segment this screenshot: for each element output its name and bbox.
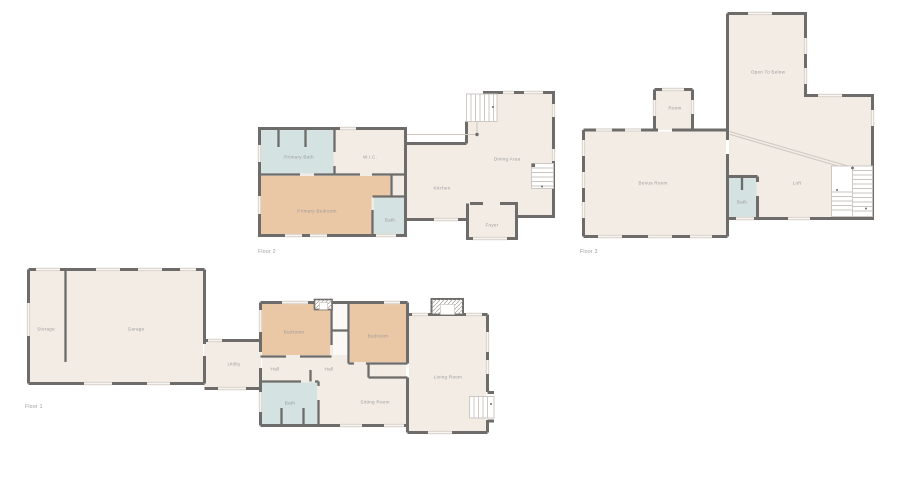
room-label-dining-area: Dining Area	[494, 157, 521, 162]
room-label-storage: Storage	[37, 327, 55, 332]
room-label-hall-west: Hall	[271, 367, 280, 372]
room-label-bonus-room: Bonus Room	[638, 181, 667, 186]
room-label-living-room: Living Room	[434, 375, 462, 380]
room-label-bath2: Bath	[385, 218, 395, 223]
room-label-bath3: Bath	[737, 200, 747, 205]
floor-2-label: Floor 2	[258, 249, 276, 255]
room-labels-layer: Storage Garage Utility Hall Hall Bedroom…	[0, 0, 900, 500]
room-label-garage: Garage	[128, 327, 145, 332]
room-label-loft: Loft	[793, 181, 802, 186]
room-label-bedroom-west: Bedroom	[284, 330, 304, 335]
room-label-foyer: Foyer	[486, 223, 499, 228]
floor-1-label: Floor 1	[25, 404, 43, 410]
room-label-kitchen: Kitchen	[433, 186, 450, 191]
room-label-bath1: Bath	[285, 401, 295, 406]
room-label-bedroom-east: Bedroom	[368, 334, 388, 339]
room-label-sitting-room: Sitting Room	[360, 400, 389, 405]
room-label-room: Room	[668, 106, 681, 111]
room-label-hall-center: Hall	[325, 367, 334, 372]
room-label-wic: W.I.C.	[363, 155, 377, 160]
floor-3-label: Floor 3	[580, 249, 598, 255]
floorplan-canvas: Storage Garage Utility Hall Hall Bedroom…	[0, 0, 900, 500]
room-label-open-to-below: Open To Below	[751, 70, 785, 75]
room-label-utility: Utility	[228, 362, 241, 367]
room-label-primary-bedroom: Primary Bedroom	[297, 209, 337, 214]
room-label-primary-bath: Primary Bath	[284, 155, 314, 160]
